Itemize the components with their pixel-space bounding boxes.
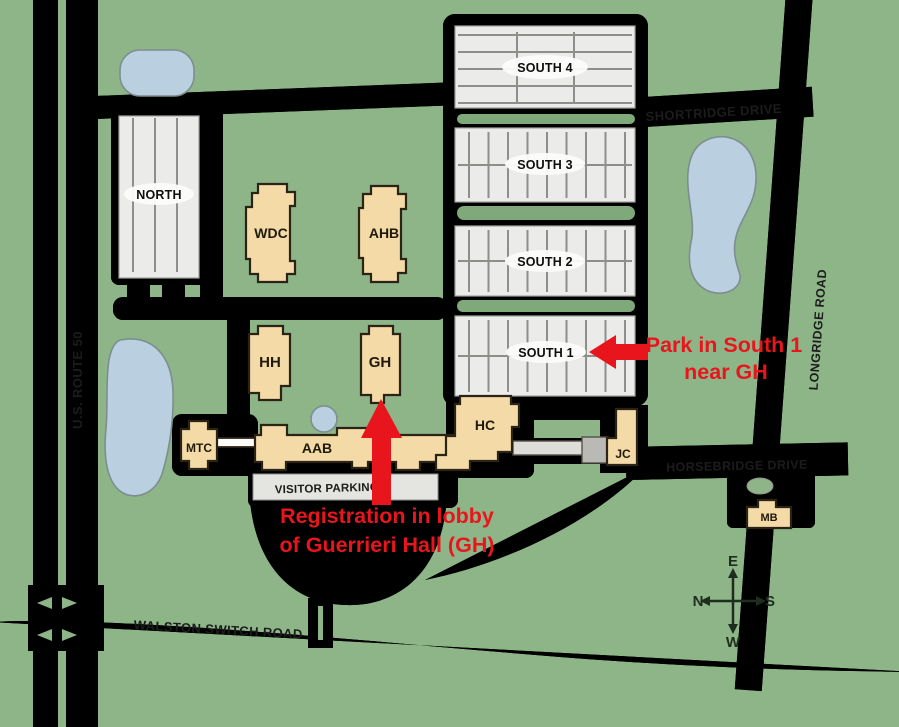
registration-note-line2: of Guerrieri Hall (GH) [279, 533, 494, 557]
compass-north-label: N [693, 593, 704, 610]
building-gh-label: GH [369, 354, 392, 371]
compass-west-label: W [726, 634, 741, 651]
parking-lot-south-2: SOUTH 2 [455, 226, 635, 296]
registration-note-line1: Registration in lobby [280, 504, 494, 528]
road-label-us-route-50: U.S. ROUTE 50 [70, 331, 85, 429]
compass-south-label: S [765, 593, 775, 610]
campus-map: NORTH SOUTH 4 SOUTH 3 SOUTH 2 SOUTH 1 VI… [0, 0, 899, 727]
building-mtc-label: MTC [186, 441, 212, 455]
parking-lot-north: NORTH [119, 116, 199, 278]
building-hc-label: HC [475, 417, 495, 433]
compass-east-label: E [728, 553, 738, 570]
parking-lot-south-3: SOUTH 3 [455, 128, 635, 202]
park-note-line1: Park in South 1 [646, 333, 803, 357]
building-jc-label: JC [615, 447, 631, 461]
pond-small-circle [311, 406, 337, 432]
parking-lot-south-1-label: SOUTH 1 [518, 346, 574, 360]
parking-lot-south-4: SOUTH 4 [455, 26, 635, 108]
building-aab-label: AAB [302, 440, 332, 456]
parking-lot-south-2-label: SOUTH 2 [517, 255, 573, 269]
building-ahb-label: AHB [369, 225, 399, 241]
park-note-line2: near GH [684, 360, 768, 384]
building-hh-label: HH [259, 354, 281, 371]
parking-lot-visitor: VISITOR PARKING [253, 474, 438, 500]
road-label-horsebridge-drive: HORSEBRIDGE DRIVE [666, 458, 808, 475]
pond-west [105, 339, 173, 496]
building-mb-label: MB [760, 512, 777, 524]
pond-northwest [120, 50, 194, 96]
building-wdc-label: WDC [254, 225, 287, 241]
parking-lot-north-label: NORTH [136, 188, 181, 202]
parking-lot-south-4-label: SOUTH 4 [517, 61, 573, 75]
parking-lot-south-3-label: SOUTH 3 [517, 158, 573, 172]
